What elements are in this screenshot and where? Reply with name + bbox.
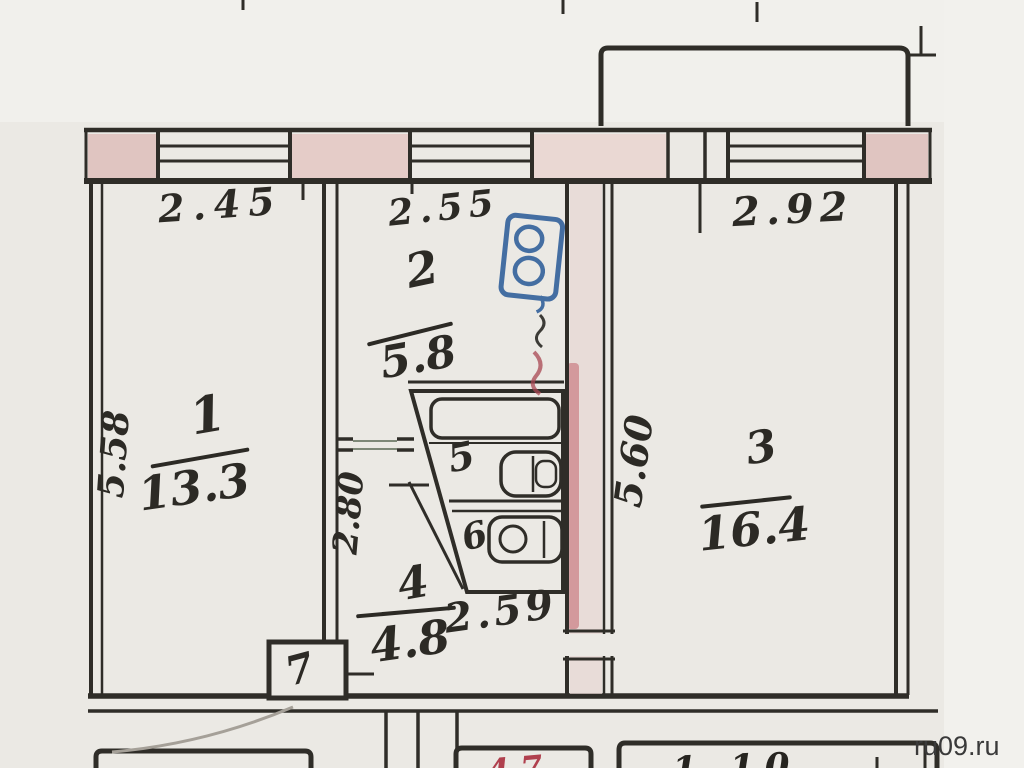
door-opening-room3 [563, 631, 615, 659]
hallway-depth-dimension: 2.80 [328, 462, 371, 565]
kitchen-width-dimension: 2.55 [386, 184, 501, 231]
room-3-area: 16.4 [696, 500, 812, 557]
floor-plan-scan: 2.45 1 13.3 5.58 2.55 2 5.8 2.92 3 16.4 … [0, 0, 1024, 768]
room-3-width-dimension: 2.92 [731, 187, 854, 233]
lower-floor-dark-label: 1.10 [671, 748, 800, 768]
wall-segment [864, 134, 928, 178]
wall-segment [88, 134, 156, 178]
room-1-area: 13.3 [135, 456, 252, 517]
wall-segment [292, 134, 408, 178]
wall-segment [532, 134, 666, 178]
room-1-width-dimension: 2.45 [157, 182, 284, 229]
kitchen-area: 5.8 [377, 330, 460, 387]
lower-floor-red-label: 4.7 [486, 751, 544, 768]
hallway-area: 4.8 [367, 613, 453, 670]
paper-background [0, 0, 1024, 768]
room-1-depth-dimension: 5.58 [93, 403, 136, 505]
site-watermark: ru09.ru [914, 731, 1000, 762]
floor-plan-drawing [0, 0, 1024, 768]
